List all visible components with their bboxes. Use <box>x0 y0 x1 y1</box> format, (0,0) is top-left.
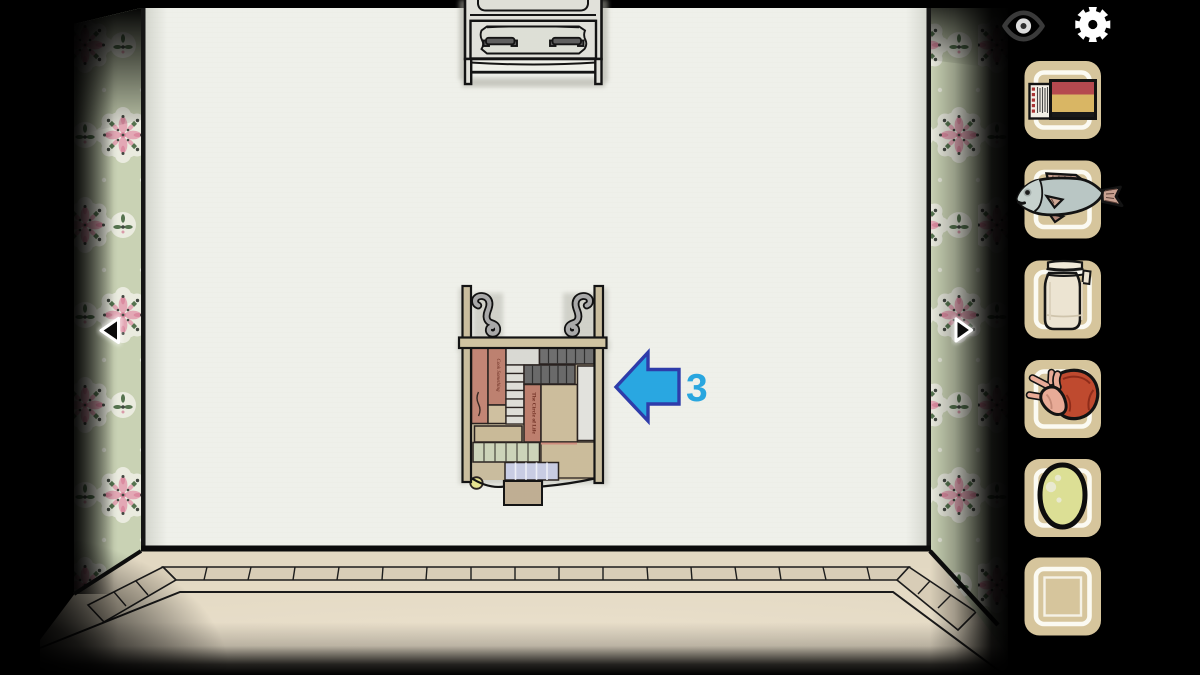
svg-text:The Circle of Life: The Circle of Life <box>531 392 537 434</box>
svg-text:3: 3 <box>686 367 708 410</box>
svg-text:Cook Something: Cook Something <box>495 359 500 392</box>
